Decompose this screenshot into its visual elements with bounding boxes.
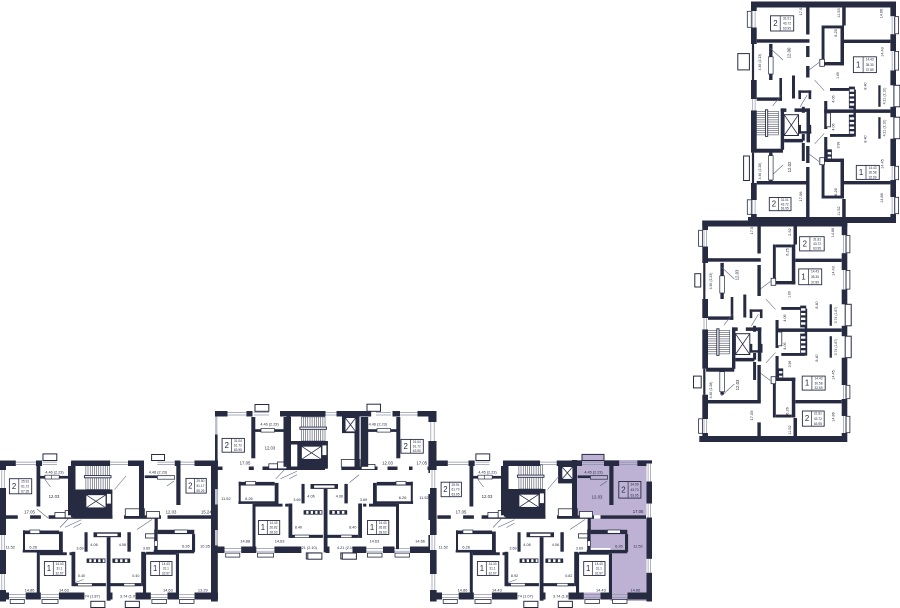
svg-text:4.06: 4.06 — [119, 543, 126, 547]
svg-text:30.58: 30.58 — [869, 171, 877, 175]
svg-text:1: 1 — [153, 564, 157, 573]
svg-text:6.26: 6.26 — [615, 544, 623, 549]
svg-text:31.1: 31.1 — [489, 567, 495, 571]
svg-text:14.43: 14.43 — [595, 562, 603, 566]
svg-text:31.1: 31.1 — [596, 567, 602, 571]
svg-text:14.43: 14.43 — [880, 47, 884, 57]
svg-text:4.06: 4.06 — [832, 95, 836, 102]
svg-text:31.01: 31.01 — [783, 17, 791, 21]
svg-text:11.52: 11.52 — [633, 544, 642, 549]
svg-text:25.91: 25.91 — [452, 483, 460, 487]
svg-text:4.06: 4.06 — [523, 543, 530, 547]
svg-text:11.52: 11.52 — [221, 496, 230, 501]
svg-text:8.40: 8.40 — [864, 82, 868, 89]
svg-text:8.92: 8.92 — [511, 574, 518, 578]
svg-text:6.26: 6.26 — [462, 545, 470, 550]
svg-text:12.03: 12.03 — [166, 510, 177, 515]
svg-text:14.43: 14.43 — [270, 521, 278, 525]
svg-text:37.89: 37.89 — [811, 280, 819, 284]
svg-text:4.06: 4.06 — [832, 123, 836, 130]
svg-text:4.46 (2.23): 4.46 (2.23) — [45, 471, 64, 475]
svg-text:34.06: 34.06 — [631, 483, 639, 487]
svg-text:26.82: 26.82 — [270, 526, 278, 530]
svg-text:4.21 (2.10): 4.21 (2.10) — [883, 88, 887, 105]
svg-text:1: 1 — [805, 379, 809, 388]
svg-text:3.69: 3.69 — [293, 498, 300, 502]
svg-text:14.86: 14.86 — [831, 412, 835, 422]
svg-text:1.69: 1.69 — [788, 291, 792, 298]
svg-text:31.04: 31.04 — [413, 440, 421, 444]
svg-text:6.26: 6.26 — [29, 545, 37, 550]
svg-text:14.43: 14.43 — [596, 587, 606, 592]
svg-text:31.01: 31.01 — [781, 198, 789, 202]
svg-text:1: 1 — [261, 523, 265, 532]
svg-text:11.53: 11.53 — [837, 8, 841, 17]
svg-text:3.69: 3.69 — [143, 546, 150, 550]
svg-text:8.40: 8.40 — [815, 354, 819, 361]
svg-text:59.29: 59.29 — [196, 489, 204, 493]
svg-text:4.06: 4.06 — [552, 543, 559, 547]
svg-text:31.1: 31.1 — [56, 567, 62, 571]
svg-text:12.00: 12.00 — [787, 47, 792, 58]
svg-text:14.43: 14.43 — [489, 562, 497, 566]
svg-text:31.04: 31.04 — [234, 439, 242, 443]
svg-text:14.43: 14.43 — [162, 562, 170, 566]
svg-text:14.66: 14.66 — [880, 9, 884, 19]
svg-text:3.74 (1.07): 3.74 (1.07) — [120, 595, 139, 599]
svg-text:31.81: 31.81 — [814, 412, 822, 416]
svg-text:43.73: 43.73 — [631, 488, 639, 492]
svg-text:43.72: 43.72 — [781, 202, 789, 206]
svg-text:6.25: 6.25 — [785, 248, 789, 255]
svg-text:4.46 (2.23): 4.46 (2.23) — [369, 423, 388, 427]
svg-text:14.86: 14.86 — [25, 587, 35, 592]
svg-text:3.74 (1.87): 3.74 (1.87) — [834, 307, 838, 324]
svg-text:67.35: 67.35 — [21, 490, 29, 494]
svg-text:1: 1 — [370, 523, 374, 532]
svg-text:3.74 (1.87): 3.74 (1.87) — [834, 339, 838, 356]
svg-text:4.46 (2.23): 4.46 (2.23) — [260, 423, 279, 427]
svg-text:13.29: 13.29 — [198, 587, 208, 592]
svg-text:29.50: 29.50 — [196, 479, 204, 483]
svg-text:14.43: 14.43 — [815, 377, 823, 381]
svg-text:8.40: 8.40 — [815, 301, 819, 308]
svg-text:4.06: 4.06 — [783, 314, 787, 321]
svg-text:14.43: 14.43 — [832, 266, 836, 276]
svg-text:3.74 (1.87): 3.74 (1.87) — [82, 595, 101, 599]
svg-text:4.06: 4.06 — [307, 495, 314, 499]
svg-text:4.45 (2.23): 4.45 (2.23) — [584, 471, 603, 475]
svg-text:4.06: 4.06 — [783, 342, 787, 349]
svg-text:12.02: 12.02 — [787, 161, 792, 172]
svg-text:2: 2 — [772, 200, 776, 209]
svg-text:0.40: 0.40 — [78, 574, 85, 578]
svg-text:14.43: 14.43 — [379, 521, 387, 525]
svg-text:6.26: 6.26 — [785, 407, 789, 414]
svg-text:4.46 (2.28): 4.46 (2.28) — [709, 382, 713, 399]
svg-text:14.86: 14.86 — [458, 587, 468, 592]
svg-text:1: 1 — [586, 564, 590, 573]
svg-text:63.95: 63.95 — [813, 247, 821, 251]
svg-text:12.03: 12.03 — [482, 494, 493, 499]
svg-text:3.69: 3.69 — [576, 546, 583, 550]
svg-text:17.05: 17.05 — [749, 410, 754, 421]
svg-text:2: 2 — [225, 441, 229, 450]
svg-text:2: 2 — [404, 442, 408, 451]
svg-text:35.30: 35.30 — [811, 275, 819, 279]
svg-text:32.69: 32.69 — [815, 386, 823, 390]
svg-text:1: 1 — [859, 168, 863, 177]
svg-text:35.30: 35.30 — [866, 63, 874, 67]
svg-text:32.97: 32.97 — [595, 571, 603, 575]
svg-text:2.52: 2.52 — [788, 228, 792, 235]
svg-text:61.70: 61.70 — [452, 488, 460, 492]
svg-text:14.66: 14.66 — [831, 228, 835, 238]
svg-text:8.40: 8.40 — [864, 135, 868, 142]
svg-text:12.03: 12.03 — [49, 494, 60, 499]
svg-text:4.46 (2.28): 4.46 (2.28) — [758, 163, 762, 180]
svg-text:4.06: 4.06 — [90, 543, 97, 547]
svg-text:28.63: 28.63 — [270, 530, 278, 534]
svg-text:4.06: 4.06 — [336, 495, 343, 499]
svg-text:3.69: 3.69 — [76, 546, 83, 550]
svg-text:17.05: 17.05 — [416, 461, 427, 466]
svg-text:6.26: 6.26 — [182, 544, 190, 549]
svg-text:3.69: 3.69 — [509, 546, 516, 550]
svg-text:11.52: 11.52 — [5, 545, 14, 550]
svg-text:2: 2 — [805, 414, 809, 423]
svg-text:8.40: 8.40 — [295, 526, 302, 530]
svg-text:61.72: 61.72 — [234, 444, 242, 448]
svg-text:12.03: 12.03 — [382, 461, 393, 466]
svg-text:4.45 (2.23): 4.45 (2.23) — [478, 471, 497, 475]
svg-text:63.95: 63.95 — [234, 448, 242, 452]
svg-text:17.05: 17.05 — [24, 510, 35, 515]
svg-text:11.52: 11.52 — [419, 495, 428, 500]
svg-text:3.69: 3.69 — [360, 498, 367, 502]
svg-text:61.72: 61.72 — [21, 484, 29, 488]
svg-text:6.26: 6.26 — [245, 496, 253, 501]
svg-text:14.63: 14.63 — [163, 587, 173, 592]
svg-text:32.97: 32.97 — [162, 571, 170, 575]
svg-text:14.43: 14.43 — [492, 587, 502, 592]
svg-text:26.82: 26.82 — [379, 526, 387, 530]
svg-text:2: 2 — [621, 485, 625, 494]
svg-text:63.95: 63.95 — [413, 449, 421, 453]
svg-text:11.52: 11.52 — [438, 545, 447, 550]
svg-text:14.63: 14.63 — [275, 539, 285, 544]
svg-text:31.81: 31.81 — [813, 237, 821, 241]
svg-text:4.21 (2.10): 4.21 (2.10) — [299, 546, 318, 550]
svg-text:12.03: 12.03 — [592, 495, 603, 500]
svg-text:4.46 (2.23): 4.46 (2.23) — [149, 471, 168, 475]
svg-text:14.63: 14.63 — [59, 587, 69, 592]
svg-text:3.99: 3.99 — [837, 142, 841, 149]
svg-text:6.25: 6.25 — [834, 29, 838, 36]
svg-text:63.95: 63.95 — [783, 27, 791, 31]
svg-text:1: 1 — [480, 564, 484, 573]
svg-text:2: 2 — [12, 482, 16, 491]
svg-text:1: 1 — [47, 564, 51, 573]
svg-text:12.03: 12.03 — [265, 446, 276, 451]
svg-text:43.72: 43.72 — [783, 22, 791, 26]
svg-text:15.24: 15.24 — [201, 510, 212, 515]
svg-text:17.06: 17.06 — [749, 224, 754, 235]
svg-text:6.26: 6.26 — [399, 495, 407, 500]
svg-text:11.52: 11.52 — [788, 425, 792, 434]
svg-text:43.72: 43.72 — [814, 417, 822, 421]
svg-text:14.45: 14.45 — [880, 159, 884, 169]
svg-text:30.58: 30.58 — [815, 381, 823, 385]
svg-text:8.40: 8.40 — [349, 526, 356, 530]
svg-text:14.43: 14.43 — [811, 270, 819, 274]
svg-text:10.35: 10.35 — [200, 544, 211, 549]
svg-text:0.40: 0.40 — [132, 574, 139, 578]
svg-text:4.46 (2.23): 4.46 (2.23) — [758, 54, 762, 71]
svg-text:14.86: 14.86 — [880, 193, 884, 203]
svg-text:12.03: 12.03 — [735, 269, 740, 280]
svg-text:11.52: 11.52 — [837, 206, 841, 215]
svg-text:17.05: 17.05 — [798, 5, 803, 16]
svg-text:63.95: 63.95 — [814, 422, 822, 426]
svg-text:2: 2 — [803, 239, 807, 248]
svg-text:28.63: 28.63 — [379, 530, 387, 534]
svg-text:32.97: 32.97 — [489, 571, 497, 575]
svg-text:17.05: 17.05 — [240, 461, 251, 466]
svg-text:2: 2 — [188, 481, 192, 490]
svg-text:14.43: 14.43 — [56, 562, 64, 566]
svg-text:14.63: 14.63 — [370, 539, 380, 544]
svg-text:63.95: 63.95 — [781, 207, 789, 211]
svg-text:3.74 (1.87): 3.74 (1.87) — [553, 595, 572, 599]
svg-text:51.17: 51.17 — [196, 484, 204, 488]
svg-text:14.43: 14.43 — [866, 58, 874, 62]
svg-text:14.45: 14.45 — [832, 370, 836, 380]
svg-text:14.88: 14.88 — [240, 539, 250, 544]
svg-text:4.21 (2.10): 4.21 (2.10) — [883, 120, 887, 137]
svg-text:1: 1 — [801, 272, 805, 281]
svg-text:17.06: 17.06 — [798, 191, 803, 202]
svg-text:37.89: 37.89 — [866, 68, 874, 72]
svg-text:43.72: 43.72 — [813, 242, 821, 246]
svg-text:2: 2 — [443, 485, 447, 494]
svg-text:3.99: 3.99 — [788, 361, 792, 368]
svg-text:6.26: 6.26 — [834, 188, 838, 195]
svg-text:4.46 (2.23): 4.46 (2.23) — [709, 273, 713, 290]
svg-text:17.05: 17.05 — [456, 510, 467, 515]
svg-text:32.97: 32.97 — [56, 571, 64, 575]
svg-text:14.43: 14.43 — [869, 166, 877, 170]
svg-text:32.69: 32.69 — [869, 175, 877, 179]
svg-text:31.1: 31.1 — [163, 567, 169, 571]
svg-text:14.66: 14.66 — [415, 539, 425, 544]
svg-text:1: 1 — [856, 60, 860, 69]
svg-text:61.72: 61.72 — [413, 445, 421, 449]
svg-text:1.69: 1.69 — [836, 72, 840, 79]
svg-text:3.74 (1.07): 3.74 (1.07) — [515, 595, 534, 599]
svg-text:2: 2 — [773, 19, 777, 28]
svg-text:17.05: 17.05 — [633, 509, 644, 514]
svg-text:14.86: 14.86 — [631, 587, 641, 592]
svg-text:25.91: 25.91 — [21, 479, 29, 483]
svg-text:4.21 (2.10): 4.21 (2.10) — [337, 546, 356, 550]
svg-text:12.03: 12.03 — [735, 379, 740, 390]
svg-text:0.82: 0.82 — [565, 574, 572, 578]
svg-text:63.95: 63.95 — [631, 494, 639, 498]
svg-text:63.95: 63.95 — [452, 493, 460, 497]
